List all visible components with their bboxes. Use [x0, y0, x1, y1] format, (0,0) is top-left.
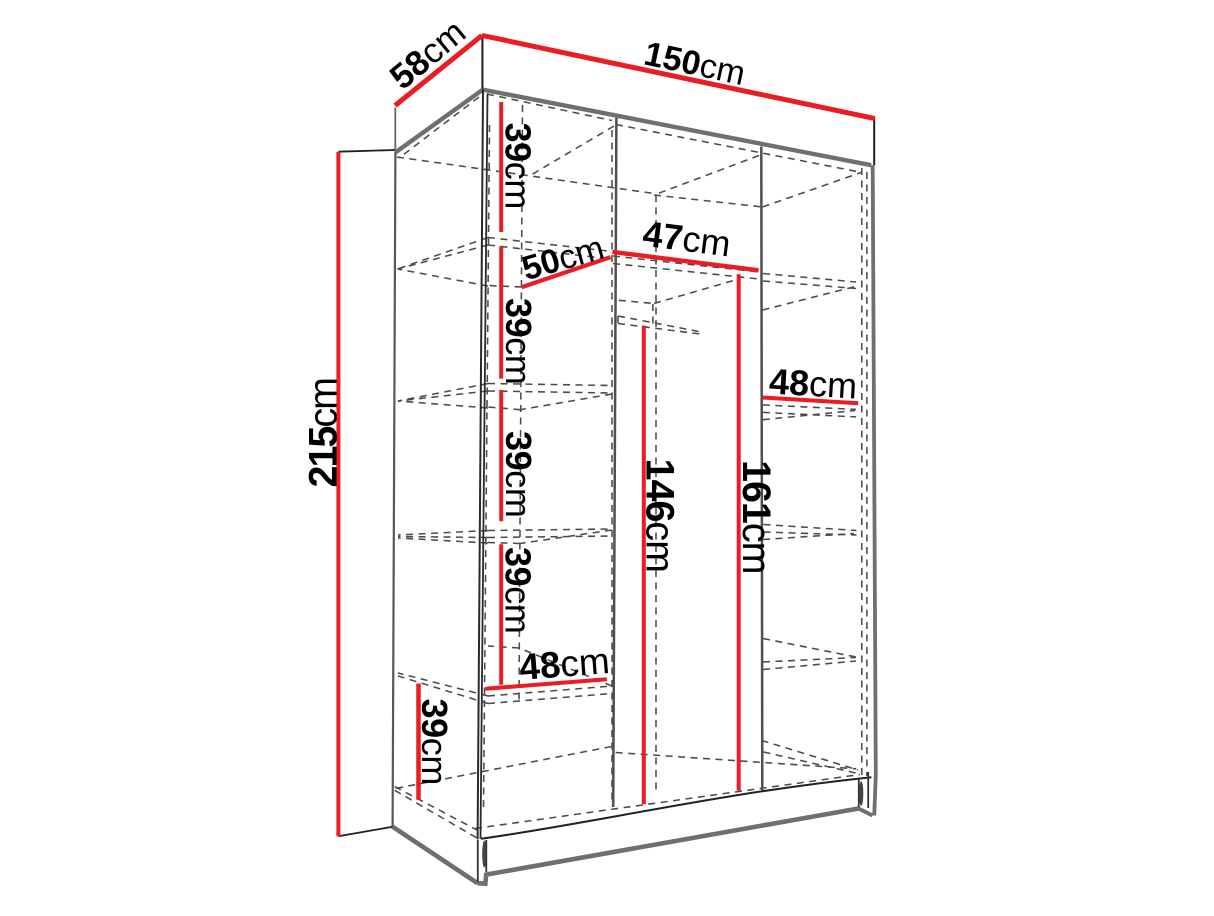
svg-text:39cm: 39cm [498, 431, 539, 517]
svg-text:215cm: 215cm [302, 379, 346, 488]
svg-text:146cm: 146cm [638, 459, 682, 573]
svg-text:39cm: 39cm [498, 123, 539, 209]
svg-text:39cm: 39cm [498, 298, 539, 384]
svg-text:48cm: 48cm [518, 640, 611, 688]
svg-text:161cm: 161cm [734, 460, 778, 574]
svg-text:39cm: 39cm [414, 699, 455, 785]
svg-text:39cm: 39cm [498, 547, 539, 633]
svg-text:48cm: 48cm [768, 361, 858, 407]
